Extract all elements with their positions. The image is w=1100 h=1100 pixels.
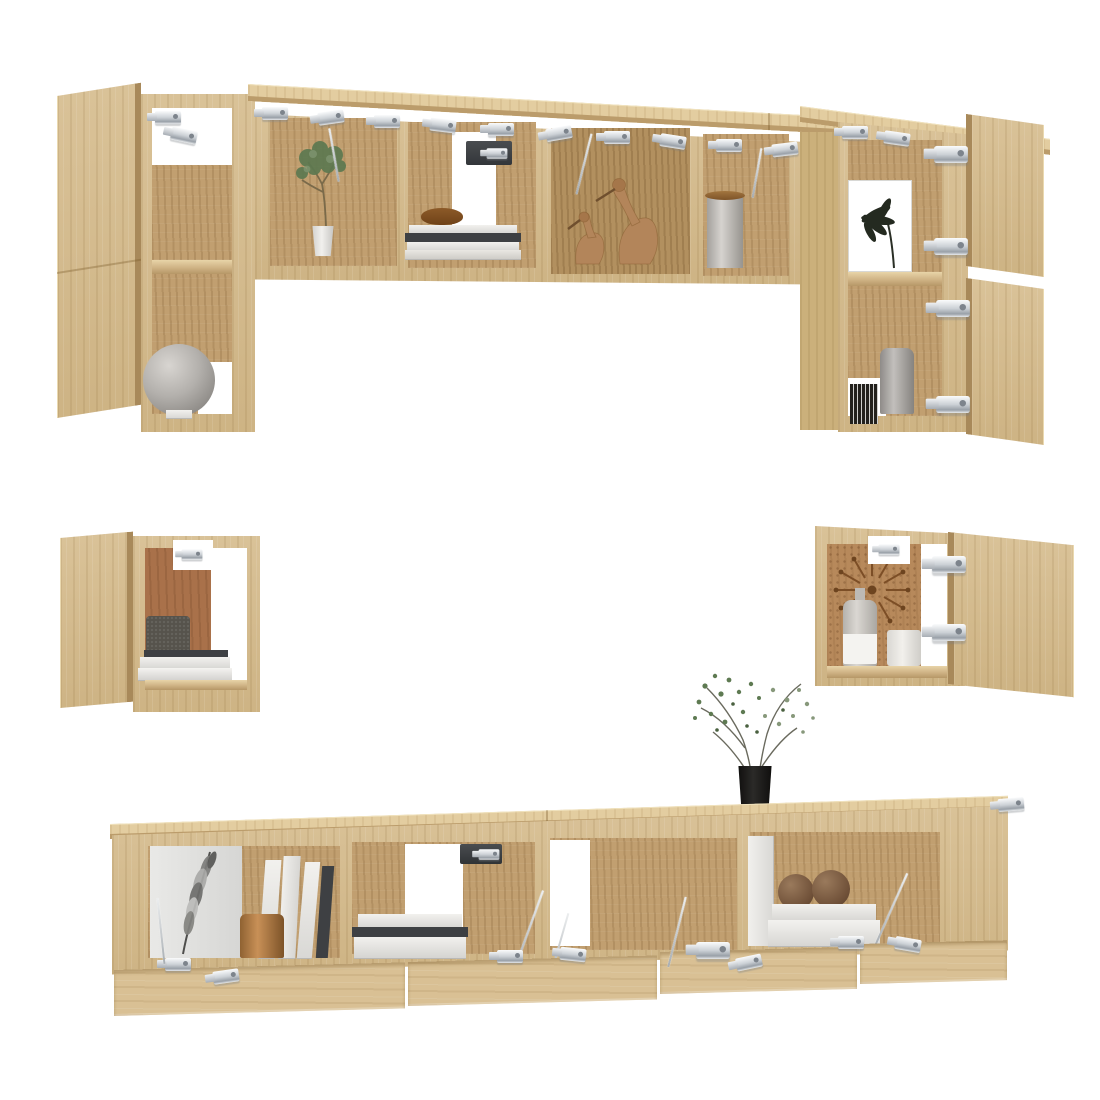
copper-vase — [240, 914, 284, 958]
hinge-icon — [934, 146, 968, 163]
right-cube-open-door — [948, 532, 1074, 697]
hinge-icon — [716, 139, 742, 152]
hinge-icon — [497, 950, 523, 963]
fold-down-bracket — [466, 141, 512, 165]
potted-plant-icon — [280, 128, 372, 228]
hinge-icon — [374, 115, 400, 128]
feather-icon — [150, 846, 242, 958]
dark-striped-books — [850, 384, 878, 424]
hinge-icon — [936, 300, 970, 317]
hinge-icon — [155, 111, 181, 124]
gray-globe — [143, 344, 215, 416]
wooden-ducks-icon — [558, 168, 680, 268]
hinge-block — [173, 540, 213, 570]
hinge-icon — [997, 797, 1024, 812]
cube-floor — [145, 680, 247, 690]
wooden-bowl — [421, 208, 463, 225]
hinge-icon — [488, 123, 514, 136]
palm-leaf-icon — [848, 180, 912, 272]
hinge-icon — [604, 131, 630, 144]
top-left-cabinet-open-door — [57, 83, 141, 418]
feather-artwork — [150, 846, 242, 958]
flap-door-1 — [114, 962, 405, 1016]
right-cabinet-upper-door — [966, 114, 1044, 277]
hinge-icon — [696, 942, 730, 959]
fold-down-bracket — [460, 844, 502, 864]
flap-door-4 — [860, 940, 1007, 984]
palm-leaf-artwork — [848, 180, 912, 272]
gray-vase — [880, 348, 914, 414]
canister-wood-lid — [705, 191, 745, 200]
hinge-icon — [936, 396, 970, 413]
hinge-icon — [165, 958, 191, 971]
hinge-icon — [932, 624, 966, 641]
back-gap — [550, 840, 590, 946]
black-plant-pot — [737, 766, 773, 808]
left-cube-open-door — [60, 532, 133, 708]
white-candle — [887, 630, 921, 666]
right-cabinet-side-wall — [800, 132, 838, 430]
right-cabinet-lower-door — [966, 278, 1044, 445]
gray-canister — [707, 196, 743, 268]
cabinet-shelf — [848, 272, 942, 286]
hinge-icon — [838, 936, 864, 949]
hinge-icon — [842, 126, 868, 139]
bronze-sphere — [812, 870, 850, 908]
book-stack — [405, 225, 521, 261]
product-photo-canvas — [0, 0, 1100, 1100]
cabinet-shelf — [152, 260, 232, 274]
globe-base — [166, 410, 192, 418]
hinge-icon — [262, 107, 288, 120]
white-book-stack — [138, 650, 232, 680]
panel-seam — [768, 113, 770, 130]
white-binder-stack — [352, 914, 468, 958]
hinge-block — [868, 536, 910, 564]
hinge-icon — [934, 238, 968, 255]
hinge-icon — [932, 556, 966, 573]
hinge-icon — [559, 947, 586, 963]
cabinet-back-panel — [152, 165, 232, 260]
door-seam — [57, 259, 141, 274]
flap-door-2 — [408, 955, 657, 1006]
